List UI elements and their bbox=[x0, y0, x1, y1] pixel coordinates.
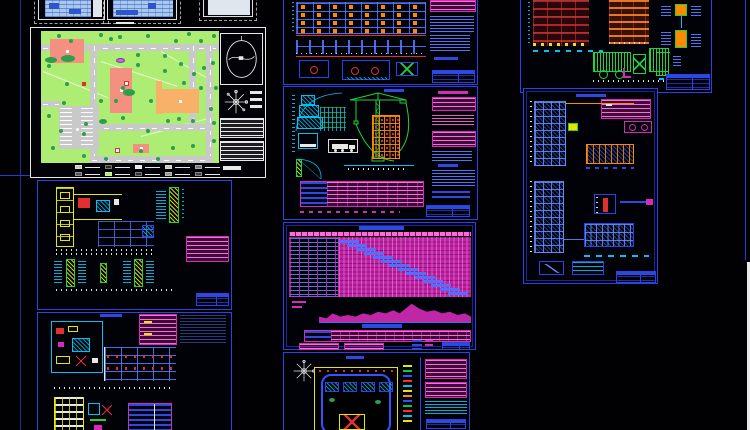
site-table bbox=[425, 382, 467, 398]
legend-swatch bbox=[195, 165, 202, 169]
column-marker bbox=[397, 29, 401, 33]
brace-marker bbox=[76, 356, 86, 366]
detail-pair bbox=[661, 2, 709, 52]
site-legend-symbol bbox=[403, 400, 412, 402]
notes-list bbox=[432, 191, 470, 199]
gantt-bar bbox=[415, 276, 435, 279]
table-header-column bbox=[301, 182, 327, 206]
leader-labels bbox=[661, 6, 671, 18]
column-marker bbox=[365, 29, 369, 33]
tree bbox=[99, 33, 104, 38]
site-legend-column bbox=[402, 365, 416, 429]
construction-table bbox=[300, 181, 424, 207]
rebar-dot bbox=[386, 140, 388, 142]
site-legend-symbol bbox=[403, 420, 412, 422]
scaffold-grid-lower bbox=[534, 181, 564, 253]
site-legend-symbol bbox=[403, 410, 412, 412]
general-notes-text bbox=[430, 35, 470, 53]
rebar-dot bbox=[386, 133, 388, 135]
notes-text bbox=[180, 315, 226, 343]
column-marker bbox=[397, 21, 401, 25]
title-block bbox=[196, 293, 229, 306]
dimension-string bbox=[56, 253, 154, 255]
scaffold-grid-upper bbox=[534, 101, 566, 166]
legend-line bbox=[145, 167, 160, 168]
marker-row bbox=[107, 367, 174, 370]
stair-block bbox=[142, 225, 154, 237]
frame-line-right bbox=[745, 0, 746, 260]
legend-swatch bbox=[105, 165, 112, 169]
room-magenta bbox=[58, 342, 64, 347]
legend-line bbox=[115, 174, 130, 175]
machine-frame bbox=[633, 54, 646, 74]
table-column-line bbox=[154, 404, 155, 430]
dimension-string bbox=[56, 249, 154, 251]
column-detail-large bbox=[169, 187, 179, 223]
leader-labels bbox=[661, 32, 671, 46]
site-road bbox=[90, 124, 213, 131]
framing-plan-grid bbox=[296, 2, 426, 34]
tree bbox=[57, 34, 62, 39]
plan-fill bbox=[113, 0, 173, 17]
detail-footing bbox=[299, 60, 329, 78]
notes-text-magenta bbox=[432, 115, 474, 127]
notes-text-cyan bbox=[425, 401, 467, 415]
sheet-sections-equipment bbox=[520, 0, 712, 93]
column-marker bbox=[317, 13, 321, 17]
gantt-bar bbox=[431, 284, 451, 287]
shrub bbox=[123, 89, 135, 96]
notes-heading-bar bbox=[434, 57, 458, 60]
section-title-bar bbox=[362, 324, 402, 328]
rebar-dot bbox=[381, 133, 383, 135]
elevation-grid bbox=[54, 397, 84, 430]
caption-dashes-cyan bbox=[584, 255, 649, 257]
tree bbox=[82, 154, 87, 159]
radiator-detail bbox=[656, 52, 670, 76]
rebar-schedule-table bbox=[186, 236, 229, 262]
green-patch bbox=[329, 398, 335, 402]
gantt-bar bbox=[381, 260, 401, 263]
divider-line bbox=[420, 357, 421, 430]
legend-swatch bbox=[75, 172, 82, 176]
orange-level-line bbox=[566, 103, 634, 104]
legend-symbol bbox=[412, 340, 422, 342]
column-marker bbox=[397, 5, 401, 9]
truck-wheel bbox=[341, 149, 344, 152]
column-marker bbox=[333, 13, 337, 17]
sheet-thumb-floor-plan-1 bbox=[38, 0, 105, 20]
room bbox=[68, 326, 78, 332]
sheet-column-detail-plan bbox=[37, 180, 232, 310]
notes-column bbox=[430, 0, 476, 84]
detail-orange-core bbox=[675, 4, 687, 16]
mini-table bbox=[344, 343, 384, 350]
economic-indicators-table bbox=[220, 118, 264, 138]
tree bbox=[214, 86, 219, 91]
sheet-title-bar bbox=[100, 314, 122, 317]
column-marker bbox=[301, 13, 305, 17]
building-profile-step bbox=[299, 105, 319, 117]
detail-circle-red bbox=[371, 67, 379, 75]
leader-labels bbox=[78, 261, 86, 285]
notes-heading-bar bbox=[438, 164, 458, 167]
rebar-dot bbox=[375, 147, 377, 149]
link-line bbox=[564, 239, 584, 240]
dimension-string bbox=[56, 289, 176, 291]
gantt-bar bbox=[347, 244, 367, 247]
rebar-dot bbox=[375, 126, 377, 128]
notes-column bbox=[432, 91, 476, 203]
rebar-dot bbox=[375, 133, 377, 135]
notes-table bbox=[432, 131, 476, 147]
rebar-dot bbox=[392, 140, 394, 142]
rebar-dot bbox=[386, 126, 388, 128]
tree bbox=[47, 64, 52, 69]
detail-small bbox=[396, 62, 418, 76]
tree bbox=[109, 37, 114, 42]
detail-cluster bbox=[88, 401, 114, 430]
legend-swatch bbox=[195, 172, 202, 176]
rebar-dot bbox=[386, 154, 388, 156]
column-marker bbox=[413, 21, 417, 25]
leader-labels bbox=[691, 6, 701, 18]
detail-pile-cap bbox=[342, 60, 390, 80]
rebar-dot bbox=[375, 140, 377, 142]
room-red bbox=[56, 328, 64, 334]
walkway bbox=[43, 71, 108, 98]
mini-table bbox=[299, 343, 339, 350]
site-table bbox=[425, 359, 467, 379]
site-legend-symbol bbox=[403, 365, 412, 367]
axis-grid bbox=[104, 347, 176, 381]
rebar-dot bbox=[381, 119, 383, 121]
legend-line bbox=[115, 167, 130, 168]
tree bbox=[199, 39, 204, 44]
tree bbox=[163, 54, 168, 59]
notes-strip bbox=[300, 211, 400, 213]
room-hatched bbox=[96, 200, 110, 212]
building-profile-step bbox=[301, 95, 315, 105]
site-road bbox=[189, 44, 196, 129]
notes-marks bbox=[673, 56, 681, 66]
gantt-bar bbox=[364, 252, 384, 255]
pile-cap-line bbox=[296, 46, 426, 47]
plan-room-block bbox=[116, 10, 138, 15]
dim-dashes-blue bbox=[586, 167, 634, 169]
site-building-orange bbox=[162, 89, 199, 113]
room-white bbox=[92, 358, 98, 363]
plan-wing-horizontal bbox=[74, 194, 122, 220]
brace-marker bbox=[102, 405, 112, 415]
rebar-dot bbox=[397, 133, 399, 135]
sheet-title-bar bbox=[576, 94, 606, 97]
plan-cluster bbox=[51, 321, 103, 373]
detail-circle-red bbox=[351, 67, 359, 75]
base-detail bbox=[572, 261, 604, 275]
scaffold-grid-ext-upper bbox=[586, 144, 634, 164]
table-mark-yellow bbox=[144, 321, 152, 323]
notes-text bbox=[432, 151, 472, 161]
sheet-thumb-floor-plan-3 bbox=[203, 0, 253, 17]
histogram-label bbox=[292, 306, 302, 308]
tree bbox=[118, 35, 123, 40]
column-marker bbox=[381, 29, 385, 33]
site-legend-symbol bbox=[403, 415, 412, 417]
tree bbox=[187, 32, 192, 37]
tree bbox=[191, 144, 196, 149]
column-marker bbox=[349, 13, 353, 17]
room bbox=[60, 220, 70, 227]
leader-labels bbox=[146, 261, 154, 285]
column-detail bbox=[100, 263, 107, 283]
radius-arc bbox=[294, 157, 324, 181]
column-tie-detail bbox=[594, 194, 616, 214]
site-legend-symbol bbox=[403, 370, 412, 372]
tree bbox=[47, 114, 52, 119]
gantt-chart-area bbox=[339, 237, 471, 297]
tree bbox=[136, 53, 141, 58]
title-block bbox=[426, 419, 466, 429]
temp-building bbox=[343, 382, 357, 392]
rebar-dot bbox=[397, 154, 399, 156]
legend-line bbox=[175, 174, 190, 175]
gantt-header-row bbox=[289, 232, 471, 236]
column-marker bbox=[365, 21, 369, 25]
column-marker bbox=[349, 5, 353, 9]
temp-building bbox=[325, 382, 339, 392]
shrub bbox=[99, 119, 107, 124]
tree bbox=[177, 117, 182, 122]
title-block bbox=[442, 342, 470, 350]
column-marker bbox=[381, 5, 385, 9]
section-base-ticks bbox=[609, 42, 649, 44]
notes-text bbox=[432, 170, 475, 188]
column-marker bbox=[381, 13, 385, 17]
notes-table bbox=[432, 97, 476, 111]
tree bbox=[136, 63, 141, 68]
sheet-foundation-plan bbox=[283, 0, 478, 85]
ground-line bbox=[344, 165, 414, 166]
parking-stalls bbox=[60, 108, 72, 147]
road-centerline bbox=[92, 128, 211, 129]
rebar-dot bbox=[386, 147, 388, 149]
legend-line bbox=[175, 167, 190, 168]
detail-circle bbox=[641, 124, 648, 131]
tree bbox=[62, 101, 67, 106]
gantt-bar bbox=[389, 264, 409, 267]
door-window-schedule bbox=[128, 403, 172, 430]
temp-lights-row bbox=[319, 370, 393, 372]
summary-table bbox=[304, 330, 471, 342]
rebar-dot bbox=[392, 119, 394, 121]
plan-margin bbox=[93, 0, 102, 17]
truck-wheel bbox=[334, 149, 337, 152]
dimension-string bbox=[530, 101, 532, 166]
table-header-column bbox=[305, 331, 331, 341]
dimension-string bbox=[54, 387, 174, 389]
tree bbox=[179, 62, 184, 67]
legend-swatch bbox=[75, 165, 82, 169]
dimension-string bbox=[348, 168, 408, 170]
sheet-site-master-plan bbox=[30, 27, 266, 178]
quarter-detail bbox=[294, 157, 324, 181]
column-marker bbox=[317, 5, 321, 9]
sheet-scaffold-elevations bbox=[523, 88, 658, 284]
rebar-dot bbox=[392, 133, 394, 135]
scaffold-material-table bbox=[601, 99, 651, 119]
rebar-dot bbox=[375, 119, 377, 121]
site-legend-symbol bbox=[403, 385, 412, 387]
room bbox=[60, 234, 70, 241]
rebar-dot bbox=[381, 154, 383, 156]
rebar-dot bbox=[375, 154, 377, 156]
room-white bbox=[114, 199, 119, 205]
plan-fill bbox=[45, 0, 91, 17]
plan-fill bbox=[208, 0, 250, 15]
table-caption-bar bbox=[223, 166, 241, 170]
leader-labels bbox=[691, 34, 701, 48]
sheet-crane-construction bbox=[283, 86, 478, 220]
plan-wing-vertical bbox=[56, 187, 74, 247]
sheet-site-logistics-plan bbox=[283, 352, 470, 430]
gantt-bar bbox=[448, 292, 468, 295]
gantt-bar bbox=[373, 256, 393, 259]
tree bbox=[166, 119, 171, 124]
legend-swatch bbox=[135, 172, 142, 176]
legend-line bbox=[85, 174, 100, 175]
road-centerline bbox=[43, 104, 59, 105]
legend-swatch bbox=[135, 165, 142, 169]
room bbox=[60, 206, 70, 213]
tree bbox=[146, 34, 151, 39]
cad-drawing-preview bbox=[0, 0, 750, 430]
notes-heading-mag bbox=[438, 91, 468, 94]
beam-line-red bbox=[296, 56, 426, 57]
column-marker bbox=[397, 13, 401, 17]
column-marker bbox=[349, 29, 353, 33]
column-marker bbox=[301, 29, 305, 33]
footing-base bbox=[300, 144, 316, 147]
wall-tie-chip bbox=[568, 123, 578, 131]
tree bbox=[51, 146, 56, 151]
sheet-title-bar bbox=[359, 226, 404, 230]
road-centerline bbox=[193, 46, 194, 127]
wind-rose-legend bbox=[250, 105, 262, 108]
building-marker bbox=[125, 82, 128, 85]
detail-circle-red bbox=[310, 66, 318, 74]
legend-symbol-mag bbox=[425, 340, 433, 342]
room bbox=[56, 356, 70, 364]
general-notes-text bbox=[430, 16, 474, 32]
table-mark-yellow bbox=[144, 333, 152, 335]
legend-swatch bbox=[165, 172, 172, 176]
histogram-label bbox=[292, 301, 306, 303]
legend-line bbox=[85, 167, 100, 168]
site-plan-legend bbox=[71, 165, 221, 177]
rebar-dot bbox=[392, 154, 394, 156]
notes-table bbox=[430, 0, 476, 12]
column-marker bbox=[413, 13, 417, 17]
detail-hatch bbox=[345, 77, 387, 80]
site-legend-symbol bbox=[403, 395, 412, 397]
legend-line bbox=[145, 174, 160, 175]
site-legend-symbol bbox=[403, 405, 412, 407]
site-building-red bbox=[115, 148, 120, 153]
road-centerline bbox=[92, 160, 211, 161]
column-marker bbox=[333, 5, 337, 9]
rebar-dot bbox=[392, 126, 394, 128]
tree bbox=[65, 82, 70, 87]
temp-building bbox=[361, 382, 375, 392]
hook-detail-magenta bbox=[623, 68, 631, 78]
gantt-bar bbox=[356, 248, 376, 251]
dimension-string bbox=[182, 189, 184, 221]
table-mark-white bbox=[606, 104, 612, 106]
gantt-task-table bbox=[289, 237, 339, 297]
footing-detail bbox=[298, 133, 318, 149]
wind-rose-legend bbox=[250, 91, 262, 94]
wind-rose-legend bbox=[250, 98, 262, 101]
plan-room-block bbox=[49, 3, 59, 9]
site-road bbox=[90, 156, 213, 163]
column-marker bbox=[301, 5, 305, 9]
site-plan-area bbox=[41, 31, 219, 163]
leader-labels bbox=[54, 261, 62, 285]
building-marker bbox=[116, 149, 119, 152]
column-marker bbox=[349, 21, 353, 25]
location-map bbox=[223, 36, 260, 82]
legend-swatch bbox=[165, 165, 172, 169]
rebar-dot bbox=[397, 147, 399, 149]
dimension-string bbox=[593, 80, 669, 82]
tree bbox=[163, 69, 168, 74]
gantt-bar bbox=[406, 272, 426, 275]
detail-green-bar bbox=[90, 419, 106, 421]
legend-symbol bbox=[412, 344, 422, 346]
shrub bbox=[45, 57, 57, 63]
parking-marker bbox=[76, 128, 79, 131]
tree bbox=[182, 81, 187, 86]
leader-labels bbox=[156, 191, 166, 219]
building-frame-under-construction bbox=[372, 115, 400, 159]
sheet-title-bar bbox=[346, 356, 364, 359]
site-building-red bbox=[124, 81, 129, 86]
detail-ticks bbox=[596, 197, 598, 213]
ground-ticks bbox=[296, 53, 426, 54]
rebar-dot bbox=[381, 147, 383, 149]
column-marker bbox=[333, 21, 337, 25]
scaffold-mesh bbox=[320, 107, 346, 131]
column-marker bbox=[333, 29, 337, 33]
base-detail bbox=[539, 261, 564, 275]
column-marker bbox=[381, 21, 385, 25]
tree bbox=[121, 116, 126, 121]
detail-circle bbox=[629, 124, 636, 131]
detail-magenta-chip bbox=[94, 425, 102, 430]
plan-room-block bbox=[69, 9, 81, 14]
scale-bar bbox=[116, 22, 134, 24]
gantt-bar bbox=[398, 268, 418, 271]
tree bbox=[99, 99, 104, 104]
detail-diagonal bbox=[542, 264, 562, 273]
beam-line-red bbox=[296, 35, 426, 36]
tree bbox=[174, 39, 179, 44]
scaffold-grid-ext-lower bbox=[584, 223, 634, 247]
rebar-dot bbox=[381, 140, 383, 142]
gantt-bar bbox=[339, 240, 359, 243]
column-marker bbox=[317, 21, 321, 25]
